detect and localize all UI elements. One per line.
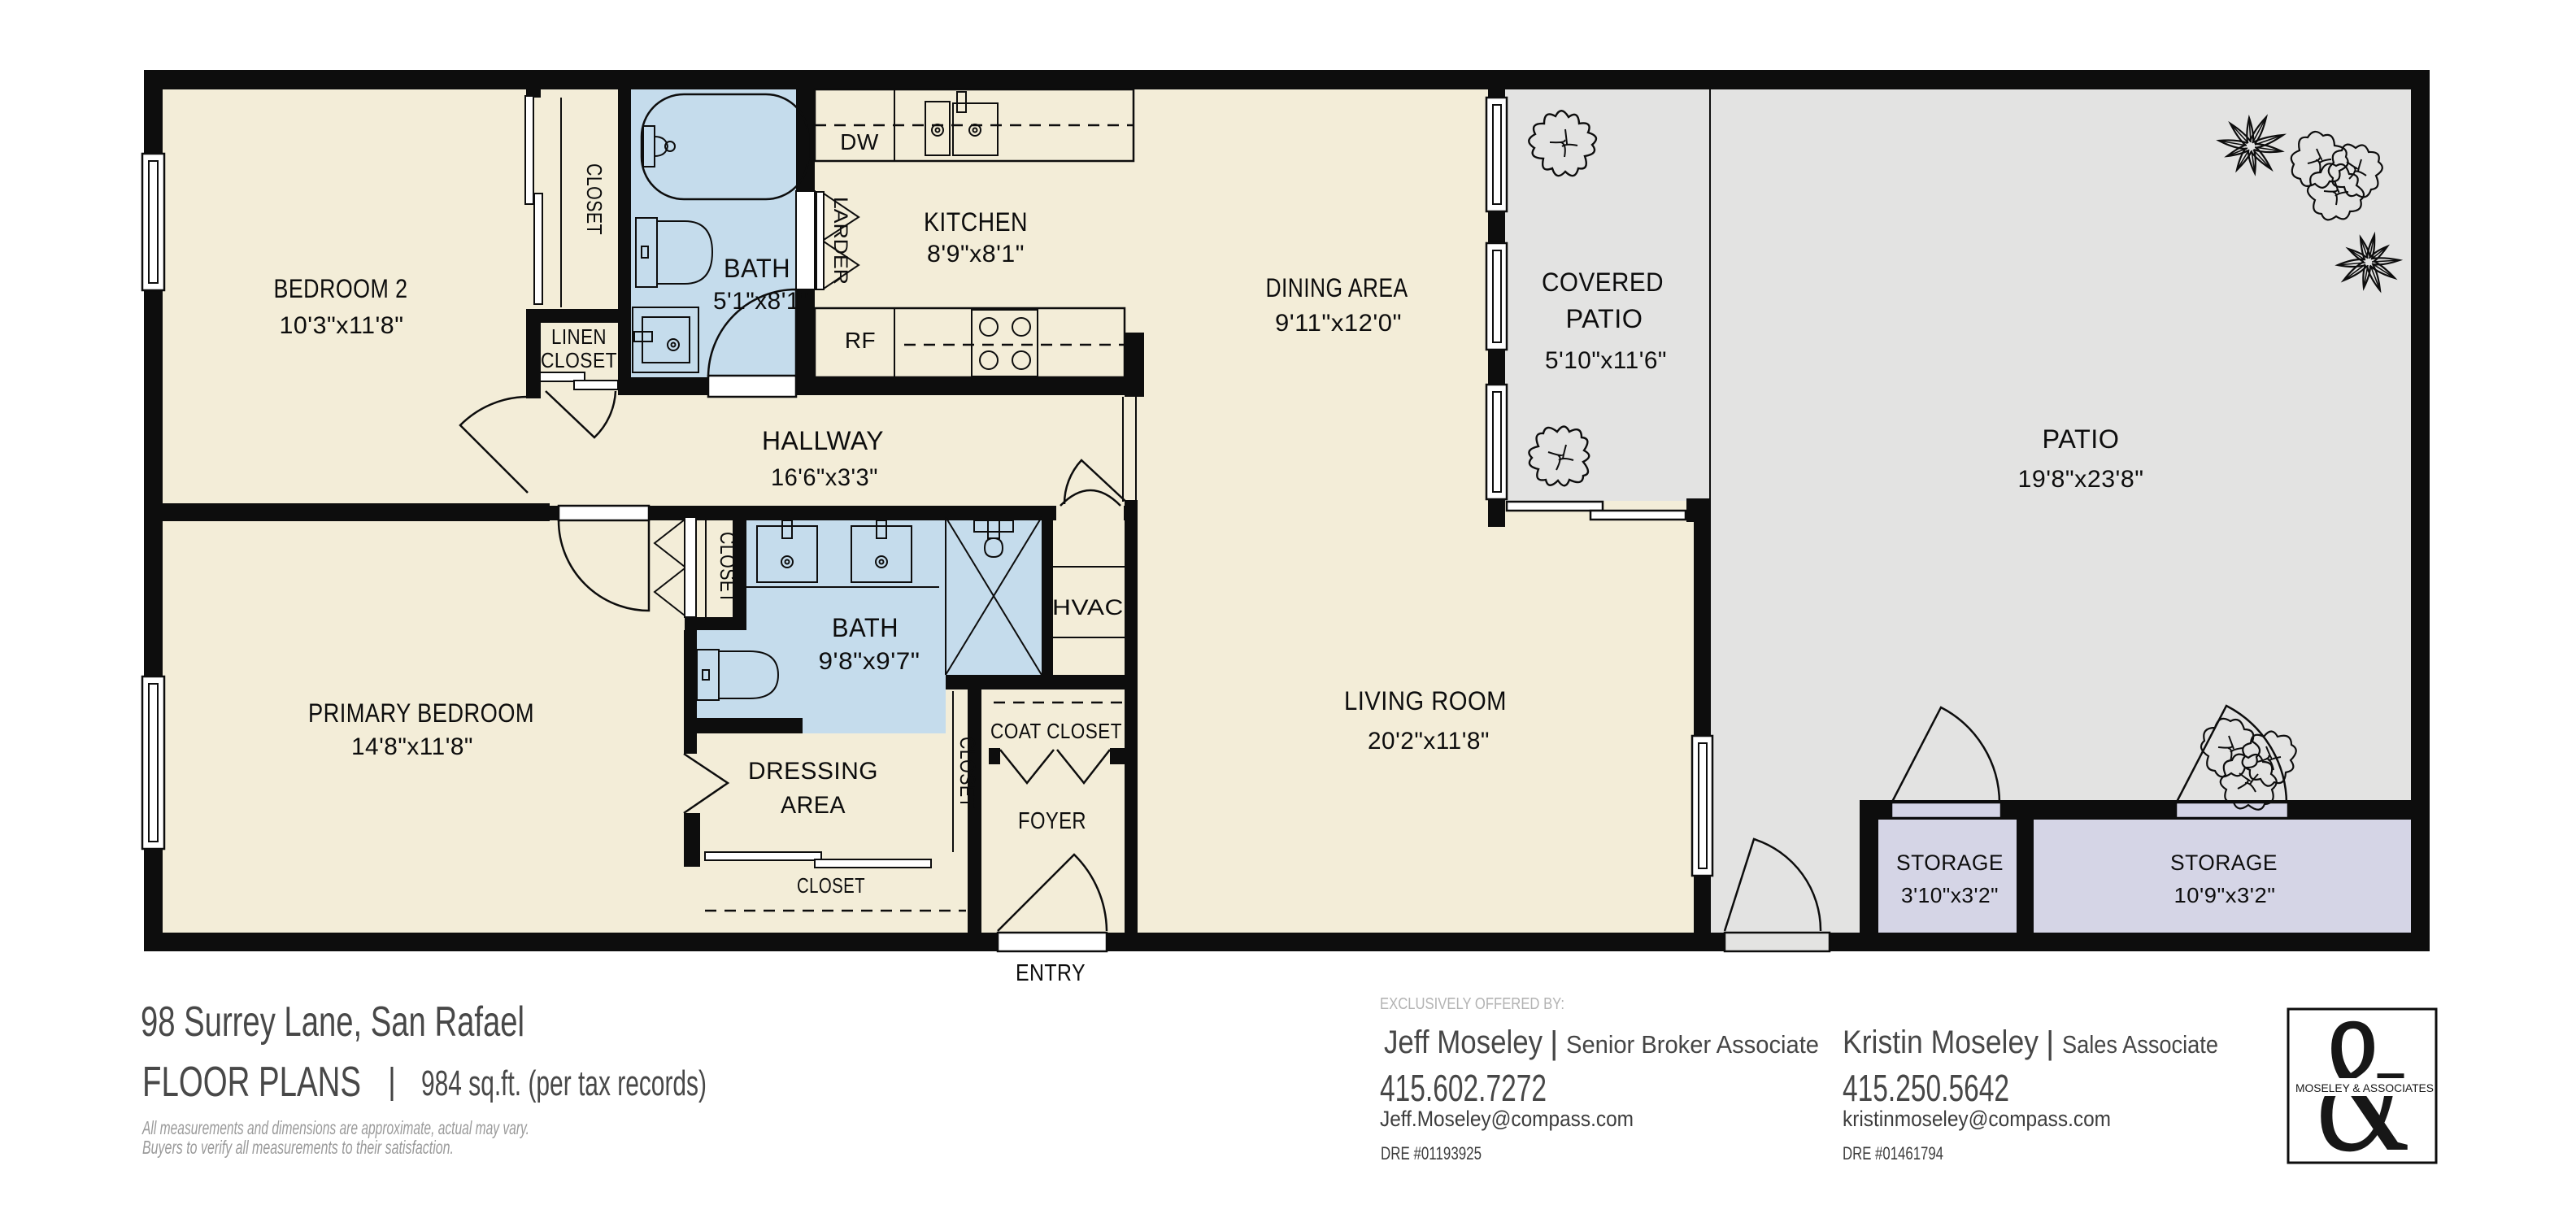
svg-text:STORAGE: STORAGE — [1896, 850, 2004, 875]
svg-text:10'3"x11'8": 10'3"x11'8" — [280, 312, 404, 339]
svg-text:Jeff.Moseley@compass.com: Jeff.Moseley@compass.com — [1380, 1107, 1634, 1131]
svg-text:9'11"x12'0": 9'11"x12'0" — [1275, 310, 1402, 337]
svg-text:DINING AREA: DINING AREA — [1266, 273, 1408, 302]
svg-text:EXCLUSIVELY OFFERED BY:: EXCLUSIVELY OFFERED BY: — [1380, 995, 1564, 1013]
svg-text:Buyers to verify all measureme: Buyers to verify all measurements to the… — [142, 1137, 454, 1158]
svg-text:20'2"x11'8": 20'2"x11'8" — [1368, 728, 1490, 755]
svg-text:|: | — [1550, 1025, 1558, 1061]
svg-text:|: | — [2046, 1025, 2054, 1061]
svg-text:LINEN: LINEN — [551, 324, 607, 349]
svg-text:14'8"x11'8": 14'8"x11'8" — [351, 733, 473, 760]
svg-text:LIVING ROOM: LIVING ROOM — [1344, 686, 1507, 716]
svg-text:COVERED: COVERED — [1542, 268, 1664, 297]
svg-text:10'9"x3'2": 10'9"x3'2" — [2174, 883, 2276, 907]
svg-text:98 Surrey Lane, San Rafael: 98 Surrey Lane, San Rafael — [141, 998, 524, 1046]
svg-text:kristinmoseley@compass.com: kristinmoseley@compass.com — [1843, 1107, 2111, 1131]
svg-text:9'8"x9'7": 9'8"x9'7" — [819, 648, 920, 675]
svg-text:STORAGE: STORAGE — [2170, 850, 2278, 875]
svg-text:BEDROOM 2: BEDROOM 2 — [274, 274, 408, 303]
svg-text:CLOSET: CLOSET — [955, 737, 980, 808]
svg-text:5'10"x11'6": 5'10"x11'6" — [1545, 347, 1667, 374]
svg-text:FLOOR PLANS: FLOOR PLANS — [142, 1059, 361, 1106]
svg-text:DRESSING: DRESSING — [748, 758, 878, 785]
svg-text:CLOSET: CLOSET — [797, 873, 865, 898]
svg-text:8'9"x8'1": 8'9"x8'1" — [927, 241, 1025, 268]
svg-text:PATIO: PATIO — [2043, 424, 2120, 454]
svg-text:5'1"x8'1": 5'1"x8'1" — [713, 288, 809, 315]
svg-text:CLOSET: CLOSET — [582, 163, 607, 235]
svg-text:Kristin Moseley: Kristin Moseley — [1843, 1024, 2039, 1060]
svg-text:FOYER: FOYER — [1018, 808, 1086, 834]
svg-text:DRE #01193925: DRE #01193925 — [1381, 1143, 1482, 1164]
svg-text:ENTRY: ENTRY — [1016, 960, 1086, 986]
svg-text:RF: RF — [845, 328, 876, 353]
svg-text:CLOSET: CLOSET — [541, 348, 617, 372]
svg-text:MOSELEY & ASSOCIATES: MOSELEY & ASSOCIATES — [2295, 1081, 2434, 1094]
svg-text:Senior Broker Associate: Senior Broker Associate — [1566, 1030, 1819, 1059]
svg-text:HALLWAY: HALLWAY — [762, 426, 884, 455]
svg-text:DW: DW — [840, 129, 879, 154]
svg-text:All measurements and dimension: All measurements and dimensions are appr… — [141, 1117, 529, 1138]
svg-text:LARDER: LARDER — [829, 197, 851, 285]
svg-text:AREA: AREA — [781, 792, 846, 819]
svg-text:Jeff Moseley: Jeff Moseley — [1384, 1024, 1543, 1060]
svg-text:415.602.7272: 415.602.7272 — [1380, 1067, 1547, 1109]
svg-text:COAT CLOSET: COAT CLOSET — [990, 719, 1122, 743]
svg-text:DRE #01461794: DRE #01461794 — [1843, 1143, 1943, 1164]
svg-text:KITCHEN: KITCHEN — [924, 207, 1028, 237]
svg-text:BATH: BATH — [724, 254, 790, 283]
svg-text:415.250.5642: 415.250.5642 — [1843, 1067, 2009, 1109]
svg-text:PRIMARY BEDROOM: PRIMARY BEDROOM — [308, 698, 534, 728]
svg-text:19'8"x23'8": 19'8"x23'8" — [2018, 466, 2144, 493]
svg-text:16'6"x3'3": 16'6"x3'3" — [771, 464, 878, 491]
svg-text:BATH: BATH — [832, 613, 899, 642]
svg-text:3'10"x3'2": 3'10"x3'2" — [1901, 883, 1999, 907]
svg-text:984 sq.ft. (per tax records): 984 sq.ft. (per tax records) — [421, 1064, 707, 1103]
svg-text:PATIO: PATIO — [1566, 304, 1643, 333]
svg-text:Sales Associate: Sales Associate — [2062, 1030, 2218, 1059]
svg-text:HVAC: HVAC — [1052, 595, 1124, 620]
